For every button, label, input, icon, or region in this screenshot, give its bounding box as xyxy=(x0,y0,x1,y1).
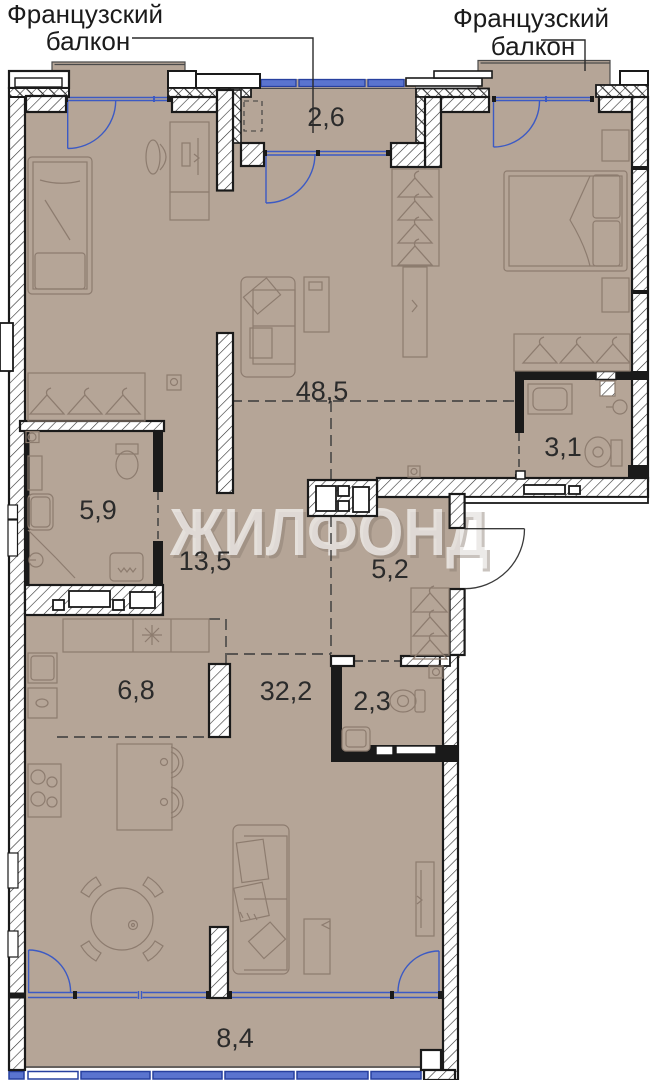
svg-text:5,2: 5,2 xyxy=(371,554,409,584)
svg-text:Французский: Французский xyxy=(7,0,163,29)
svg-text:8,4: 8,4 xyxy=(216,1023,254,1053)
svg-text:6,8: 6,8 xyxy=(117,675,155,705)
svg-text:48,5: 48,5 xyxy=(296,376,349,406)
svg-text:Французский: Французский xyxy=(453,3,609,33)
svg-text:2,3: 2,3 xyxy=(353,686,391,716)
svg-text:балкон: балкон xyxy=(46,26,130,56)
svg-text:5,9: 5,9 xyxy=(79,495,117,525)
svg-text:13,5: 13,5 xyxy=(179,546,232,576)
svg-text:балкон: балкон xyxy=(491,31,575,61)
svg-text:32,2: 32,2 xyxy=(260,676,313,706)
svg-text:3,1: 3,1 xyxy=(544,432,582,462)
